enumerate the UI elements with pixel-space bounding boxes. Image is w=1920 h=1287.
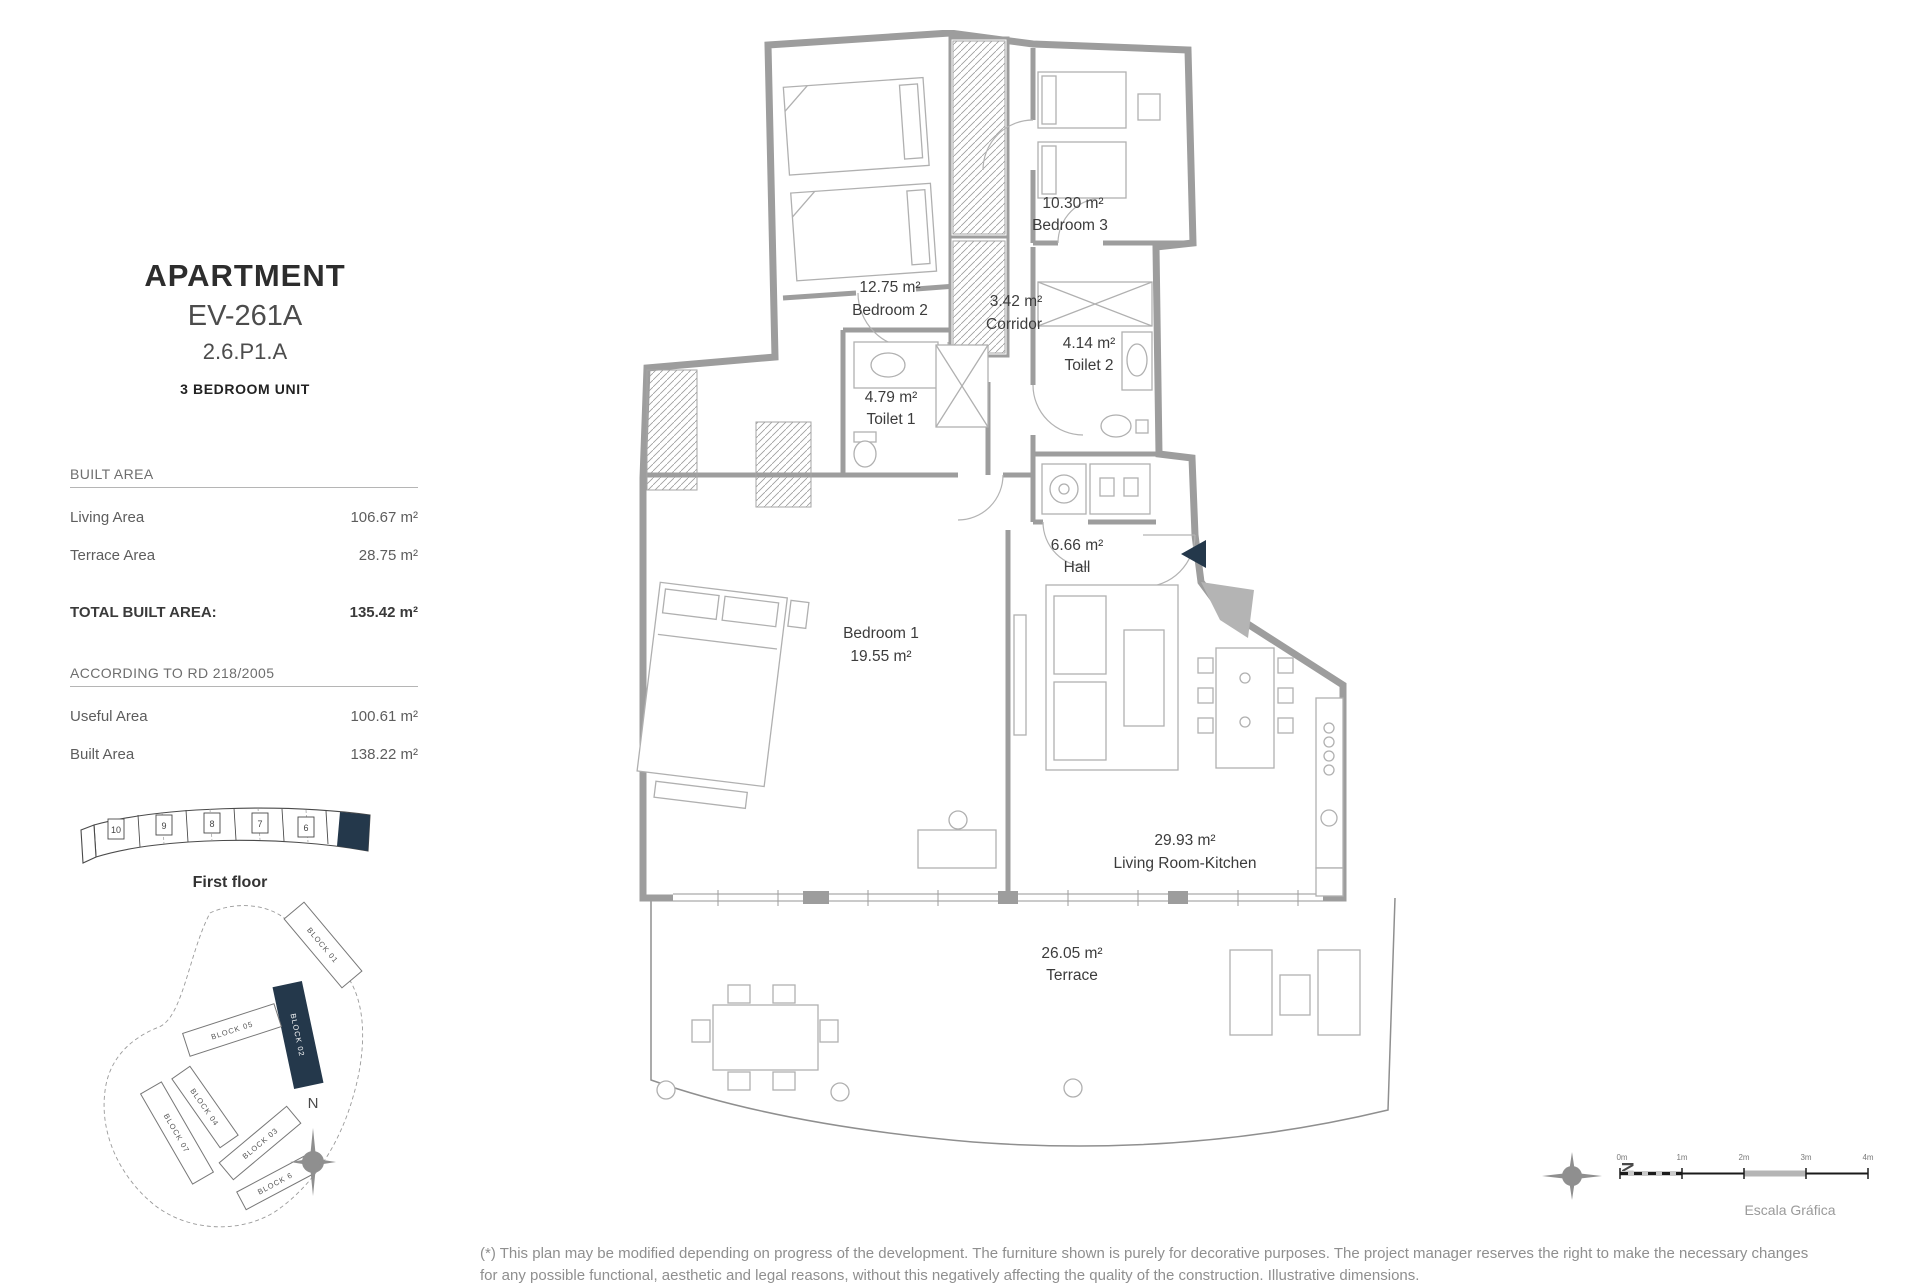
site-block: BLOCK 01 — [284, 902, 362, 988]
scale-tick: 2m — [1738, 1153, 1749, 1162]
floor-strip-diagram: 10 9 8 7 6 First floor — [80, 795, 380, 895]
unit-type: 3 BEDROOM UNIT — [70, 381, 420, 397]
room-area: 19.55 m² — [850, 648, 911, 665]
room-area: 10.30 m² — [1042, 195, 1103, 212]
built-area-header: BUILT AREA — [70, 466, 418, 488]
north-arrow: N — [288, 1092, 338, 1202]
room-name: Bedroom 2 — [852, 302, 928, 319]
north-label: N — [308, 1095, 319, 1112]
unit-number: 7 — [257, 819, 262, 829]
row-label: Built Area — [70, 746, 134, 763]
room-name: Bedroom 1 — [843, 625, 919, 642]
site-block-highlighted: BLOCK 02 — [273, 981, 324, 1089]
row-label: Living Area — [70, 509, 144, 526]
unit-number: 10 — [111, 825, 121, 835]
row-value: 100.61 m² — [350, 708, 418, 725]
table-row: Living Area 106.67 m² — [70, 509, 418, 526]
area-table: BUILT AREA Living Area 106.67 m² Terrace… — [70, 466, 418, 763]
room-name: Hall — [1064, 559, 1091, 576]
unit-number: 8 — [209, 819, 214, 829]
laundry-fixtures — [1042, 464, 1150, 514]
room-area: 4.79 m² — [865, 389, 918, 406]
room-name: Toilet 1 — [866, 411, 915, 428]
room-area: 12.75 m² — [859, 279, 920, 296]
scale-tick: 4m — [1862, 1153, 1873, 1162]
scale-tick: 0m — [1616, 1153, 1627, 1162]
wardrobe-closet — [756, 422, 811, 507]
room-area: 3.42 m² — [990, 293, 1043, 310]
row-value: 28.75 m² — [359, 547, 418, 564]
terrace-window-wall — [673, 889, 1323, 907]
rd-header: ACCORDING TO RD 218/2005 — [70, 665, 418, 687]
unit-ref: 2.6.P1.A — [70, 339, 420, 365]
row-value: 106.67 m² — [350, 509, 418, 526]
row-value: 138.22 m² — [350, 746, 418, 763]
unit-number: 6 — [303, 823, 308, 833]
scale-bar-title: Escala Gráfica — [1700, 1202, 1880, 1218]
unit-number: 9 — [161, 821, 166, 831]
floor-plan: 10.30 m² Bedroom 3 12.75 m² Bedroom 2 3.… — [618, 30, 1418, 1175]
room-area: 26.05 m² — [1041, 945, 1102, 962]
room-name: Terrace — [1046, 967, 1098, 984]
kitchen-counter — [1316, 698, 1343, 896]
room-name: Corridor — [986, 316, 1042, 333]
unit-code: EV-261A — [70, 300, 420, 333]
room-area: 6.66 m² — [1051, 537, 1104, 554]
scale-bar: 0m 1m 2m 3m 4m — [1615, 1148, 1880, 1193]
scale-tick: 1m — [1676, 1153, 1687, 1162]
total-label: TOTAL BUILT AREA: — [70, 604, 217, 621]
scale-tick: 3m — [1800, 1153, 1811, 1162]
page-title: APARTMENT — [70, 258, 420, 294]
title-block: APARTMENT EV-261A 2.6.P1.A 3 BEDROOM UNI… — [70, 258, 420, 397]
site-plan: BLOCK 01 BLOCK 02 BLOCK 05 BLOCK 04 BLOC… — [85, 895, 385, 1245]
compass-icon — [290, 1128, 336, 1196]
site-block: BLOCK 05 — [183, 1004, 282, 1056]
highlighted-unit — [337, 812, 370, 851]
table-row: Built Area 138.22 m² — [70, 746, 418, 763]
room-area: 4.14 m² — [1063, 335, 1116, 352]
total-row: TOTAL BUILT AREA: 135.42 m² — [70, 604, 418, 621]
table-row: Terrace Area 28.75 m² — [70, 547, 418, 564]
total-value: 135.42 m² — [350, 604, 418, 621]
room-area: 29.93 m² — [1154, 832, 1215, 849]
room-name: Living Room-Kitchen — [1113, 855, 1256, 872]
row-label: Useful Area — [70, 708, 148, 725]
room-name: Bedroom 3 — [1032, 217, 1108, 234]
floor-strip-label: First floor — [193, 874, 268, 891]
wardrobe-closet — [647, 370, 697, 490]
compass-icon — [1542, 1152, 1602, 1200]
table-row: Useful Area 100.61 m² — [70, 708, 418, 725]
row-label: Terrace Area — [70, 547, 155, 564]
room-name: Toilet 2 — [1064, 357, 1113, 374]
